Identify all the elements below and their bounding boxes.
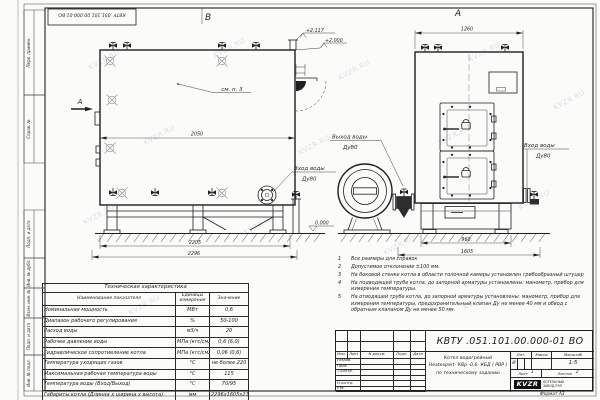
param-units: МПа (кгс/см2) <box>176 348 210 359</box>
note-text: Все размеры для справок <box>351 256 590 262</box>
tb-cell <box>411 387 426 393</box>
listov-label: Листов <box>558 372 572 376</box>
ground-hatching <box>95 234 550 243</box>
watermark-text: KVZR.RU <box>87 48 121 71</box>
tb-cell <box>348 331 361 342</box>
outlet-label-text: Выход воды <box>332 135 368 141</box>
listov-cell: Листов 2 <box>542 370 594 378</box>
tb-header-izm: Изм. <box>336 352 348 359</box>
listov-value: 2 <box>576 371 579 375</box>
note-number: 2 <box>338 264 351 270</box>
tb-header-list: Лист <box>348 352 361 359</box>
param-units: м3/ч <box>176 327 210 338</box>
tb-cell <box>394 342 411 353</box>
designation: Котел водогрейный Heatexpert- КВр -0,6- … <box>426 352 511 392</box>
tb-header-data: Дата <box>411 352 426 359</box>
valve-icon <box>151 188 159 196</box>
tb-header-podp: Подп. <box>394 352 411 359</box>
watermark-text: KVZR.RU <box>552 88 586 111</box>
margin-label: Подп. и дата <box>26 322 31 350</box>
logo-caption: КОТЕЛЬНЫЙ ЗАВОД РЭП <box>543 381 564 388</box>
watermark-text: KVZR.RU <box>82 203 116 226</box>
watermark-text: KVZR.RU <box>142 123 176 146</box>
note-item: 4На подводящей трубе котла, до запорной … <box>338 280 590 293</box>
col-header-units: Единицы измерения <box>176 293 210 306</box>
watermark-text: KVZR.RU <box>437 123 471 146</box>
masshtab-value: 1:5 <box>552 359 594 370</box>
tb-cell <box>336 342 348 353</box>
col-header-value: Значение <box>210 293 249 306</box>
param-value: 0,6 <box>210 306 249 317</box>
param-name: Номинальная мощность <box>43 306 176 317</box>
title-block-revision-grid: Изм. Лист N докум. Подп. Дата Разраб. Пр… <box>336 331 426 392</box>
tb-cell <box>361 331 394 342</box>
valve-icon <box>434 45 442 53</box>
lifting-lug-icon <box>217 188 228 199</box>
tech-characteristics-table: Техническая характеристика Наименование … <box>42 283 249 400</box>
note-number: 4 <box>338 280 351 293</box>
dim-text: 1605 <box>461 249 473 255</box>
param-units: °С <box>176 369 210 380</box>
tb-cell <box>411 342 426 353</box>
valve-icon <box>501 45 509 53</box>
note-number: 5 <box>338 294 351 313</box>
param-units: % <box>176 316 210 327</box>
corner-stamp: КВТУ .051.101.00.000-01 ВО <box>48 9 136 25</box>
tb-cell <box>394 331 411 342</box>
water-inlet-flange-icon <box>258 186 276 204</box>
inlet-dn-text: Ду80 <box>301 177 317 183</box>
blower-fan <box>338 164 392 234</box>
tb-cell <box>361 387 394 393</box>
designation-line: по техническому заданию <box>426 370 510 377</box>
watermark-text: KVZR.RU <box>337 58 371 81</box>
furnace-door-lower <box>440 151 496 199</box>
tb-cell <box>394 387 411 393</box>
param-value: не более 220 <box>210 358 249 369</box>
note-text: На боковой стенке котла в области топочн… <box>351 272 590 278</box>
note-item: 3На боковой стенке котла в области топоч… <box>338 272 590 278</box>
dim-text: 2296 <box>188 251 200 257</box>
dim-2050: 2050 <box>100 132 295 140</box>
lit-value: И <box>511 359 518 370</box>
col-header-name: Наименование показателя <box>43 293 176 306</box>
massa-value <box>532 359 552 370</box>
table-title: Техническая характеристика <box>43 284 249 293</box>
dim-2296: 2296 <box>92 250 297 260</box>
valve-icon <box>109 188 117 196</box>
section-arrow: А <box>71 98 93 111</box>
elevation-text: +2.000 <box>325 38 343 44</box>
logo-caption-line: ЗАВОД РЭП <box>543 385 564 389</box>
lifting-lug-icon <box>217 56 228 67</box>
valve-icon <box>400 189 408 197</box>
dim-1260: 1260 <box>415 27 523 49</box>
list-value: 1 <box>531 371 534 375</box>
view-a-label: А <box>454 9 461 19</box>
param-units: °С <box>176 358 210 369</box>
dim-text: 2205 <box>189 240 201 246</box>
param-name: Рабочее давление воды <box>43 337 176 348</box>
param-units: МПа (кгс/см2) <box>176 337 210 348</box>
param-value: 0,6 (6,0) <box>210 337 249 348</box>
valve-icon <box>252 43 260 51</box>
format-value: А3 <box>559 392 565 397</box>
param-units: мм <box>176 390 210 400</box>
list-label: Лист <box>518 372 528 376</box>
outlet-valve-assembly <box>393 189 414 218</box>
dim-text: 960 <box>461 237 470 243</box>
note-number: 3 <box>338 272 351 278</box>
list-cell: Лист 1 <box>511 370 542 378</box>
param-units: МВт <box>176 306 210 317</box>
inlet-dn-text: Ду80 <box>535 154 551 160</box>
note-number: 1 <box>338 256 351 262</box>
param-name: Расход воды <box>43 327 176 338</box>
tb-cell <box>336 331 348 342</box>
param-value: 20 <box>210 327 249 338</box>
elevation-text: 0.000 <box>315 221 329 227</box>
note-item: 5На отводящей трубе котла, до запорной а… <box>338 294 590 313</box>
margin-label: Инв. № подл. <box>26 359 31 387</box>
tb-row-utv: Утв. <box>336 387 361 393</box>
tb-cell <box>348 342 361 353</box>
tb-cell <box>518 359 525 370</box>
title-block: Изм. Лист N докум. Подп. Дата Разраб. Пр… <box>335 330 593 391</box>
corner-stamp-text: КВТУ .051.101.00.000-01 ВО <box>58 12 126 18</box>
param-name: Максимальная рабочая температура воды <box>43 369 176 380</box>
margin-label: Инв. № дубл. <box>26 259 31 286</box>
note-text: Допустимое отклонение ±100 мм. <box>351 264 590 270</box>
margin-label: Подп. и дата <box>26 220 31 248</box>
valve-icon <box>208 188 216 196</box>
control-panel <box>489 72 517 93</box>
callout-text: см. п. 3 <box>221 87 243 93</box>
document-number: КВТУ .051.101.00.000-01 ВО <box>426 331 594 352</box>
margin-label: Перв. примен. <box>26 37 31 67</box>
elevation-text: +2.117 <box>306 28 324 34</box>
format-label: Формат <box>540 392 557 397</box>
param-name: Габариты котла (Длинна х ширина х высота… <box>43 390 176 400</box>
tb-header-docnum: N докум. <box>361 352 394 359</box>
dim-text: 2050 <box>191 132 203 138</box>
tb-cell <box>411 331 426 342</box>
lit-label: Лит. <box>511 352 532 359</box>
view-b-side: В <box>71 8 336 260</box>
note-text: На подводящей трубе котла, до запорной а… <box>351 280 590 293</box>
watermark-text: KVZR.RU <box>297 133 331 156</box>
outlet-dn-text: Ду80 <box>342 145 358 151</box>
margin-label: Справ. № <box>26 119 31 138</box>
tb-cell <box>525 359 532 370</box>
note-item: 2Допустимое отклонение ±100 мм. <box>338 264 590 270</box>
param-name: Температура уходящих газов <box>43 358 176 369</box>
param-value: 50-100 <box>210 316 249 327</box>
margin-label: Взам. инв. № <box>26 289 31 316</box>
valve-icon <box>123 43 131 51</box>
kvzr-logo: KVZR <box>514 380 541 389</box>
param-value: 70/95 <box>210 380 249 391</box>
section-arrow-label: А <box>77 98 83 106</box>
lifting-lug-icon <box>105 56 116 67</box>
param-name: Гидравлическое сопротивление котла <box>43 348 176 359</box>
format-note: Формат А3 <box>540 392 565 397</box>
dim-text: 1260 <box>461 27 473 33</box>
base-frame-a <box>421 204 511 234</box>
param-value: 0,06 (0,6) <box>210 348 249 359</box>
lifting-lug-icon <box>105 143 116 154</box>
valve-icon <box>421 45 429 53</box>
designation-line: Heatexpert- КВр -0,6- КБД ( РВР ) <box>426 362 510 369</box>
masshtab-label: Масштаб <box>552 352 594 359</box>
designation-line: Котел водогрейный <box>426 355 510 362</box>
inlet-water-label-b: Вход воды Ду80 <box>273 166 336 192</box>
tb-cell <box>361 342 394 353</box>
valve-icon <box>292 192 300 200</box>
logo-area: KVZR КОТЕЛЬНЫЙ ЗАВОД РЭП <box>511 378 594 391</box>
param-value: 115 <box>210 369 249 380</box>
param-value: 2296х1605х2117 <box>210 390 249 400</box>
callout-see-note-3: см. п. 3 <box>177 83 251 93</box>
note-text: На отводящей трубе котла, до запорной ар… <box>351 294 590 313</box>
inlet-label-text: Вход воды <box>524 143 555 149</box>
lifting-lug-icon <box>107 95 118 106</box>
view-a-front: А 1260 <box>398 9 569 258</box>
param-units: °С <box>176 380 210 391</box>
notes-list: 1Все размеры для справок 2Допустимое отк… <box>338 256 590 315</box>
inlet-water-label-a: Вход воды Ду80 <box>522 143 569 188</box>
param-name: Температура воды (Вход/Выход) <box>43 380 176 391</box>
inlet-label-text: Вход воды <box>294 166 325 172</box>
lifting-lug-icon <box>117 188 128 199</box>
view-b-label: В <box>205 13 211 23</box>
note-item: 1Все размеры для справок <box>338 256 590 262</box>
param-name: Диапазон рабочего регулирования <box>43 316 176 327</box>
massa-label: Масса <box>532 352 552 359</box>
drawing-sheet: KVZR.RU KVZR.RU KVZR.RU KVZR.RU KVZR.RU … <box>0 0 600 400</box>
watermark-text: KVZR.RU <box>382 233 416 256</box>
